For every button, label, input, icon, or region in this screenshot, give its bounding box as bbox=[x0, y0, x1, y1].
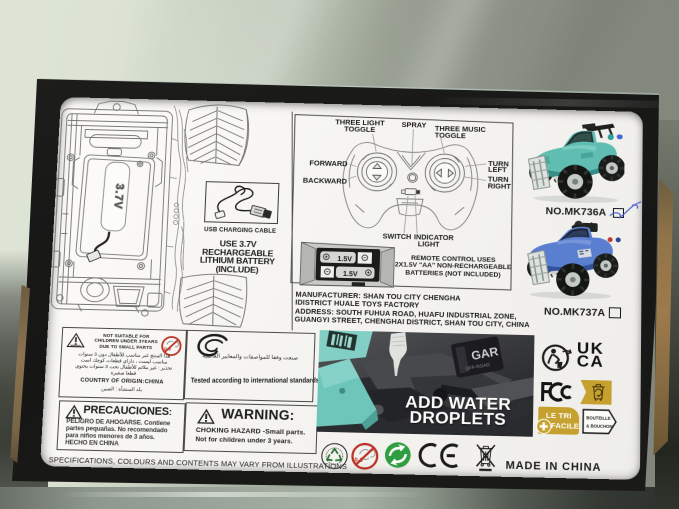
svg-text:0-3: 0-3 bbox=[354, 457, 363, 463]
svg-text:& BOUCHON: & BOUCHON bbox=[586, 423, 613, 429]
svg-text:WARNING: WARNING bbox=[70, 344, 81, 347]
svg-text:3.7V: 3.7V bbox=[111, 183, 126, 210]
svg-text:1.5V: 1.5V bbox=[343, 271, 358, 278]
svg-text:BOUTEILLE: BOUTEILLE bbox=[586, 415, 611, 421]
svg-text:0-3: 0-3 bbox=[164, 346, 172, 351]
svg-text:1.5V: 1.5V bbox=[337, 256, 352, 263]
